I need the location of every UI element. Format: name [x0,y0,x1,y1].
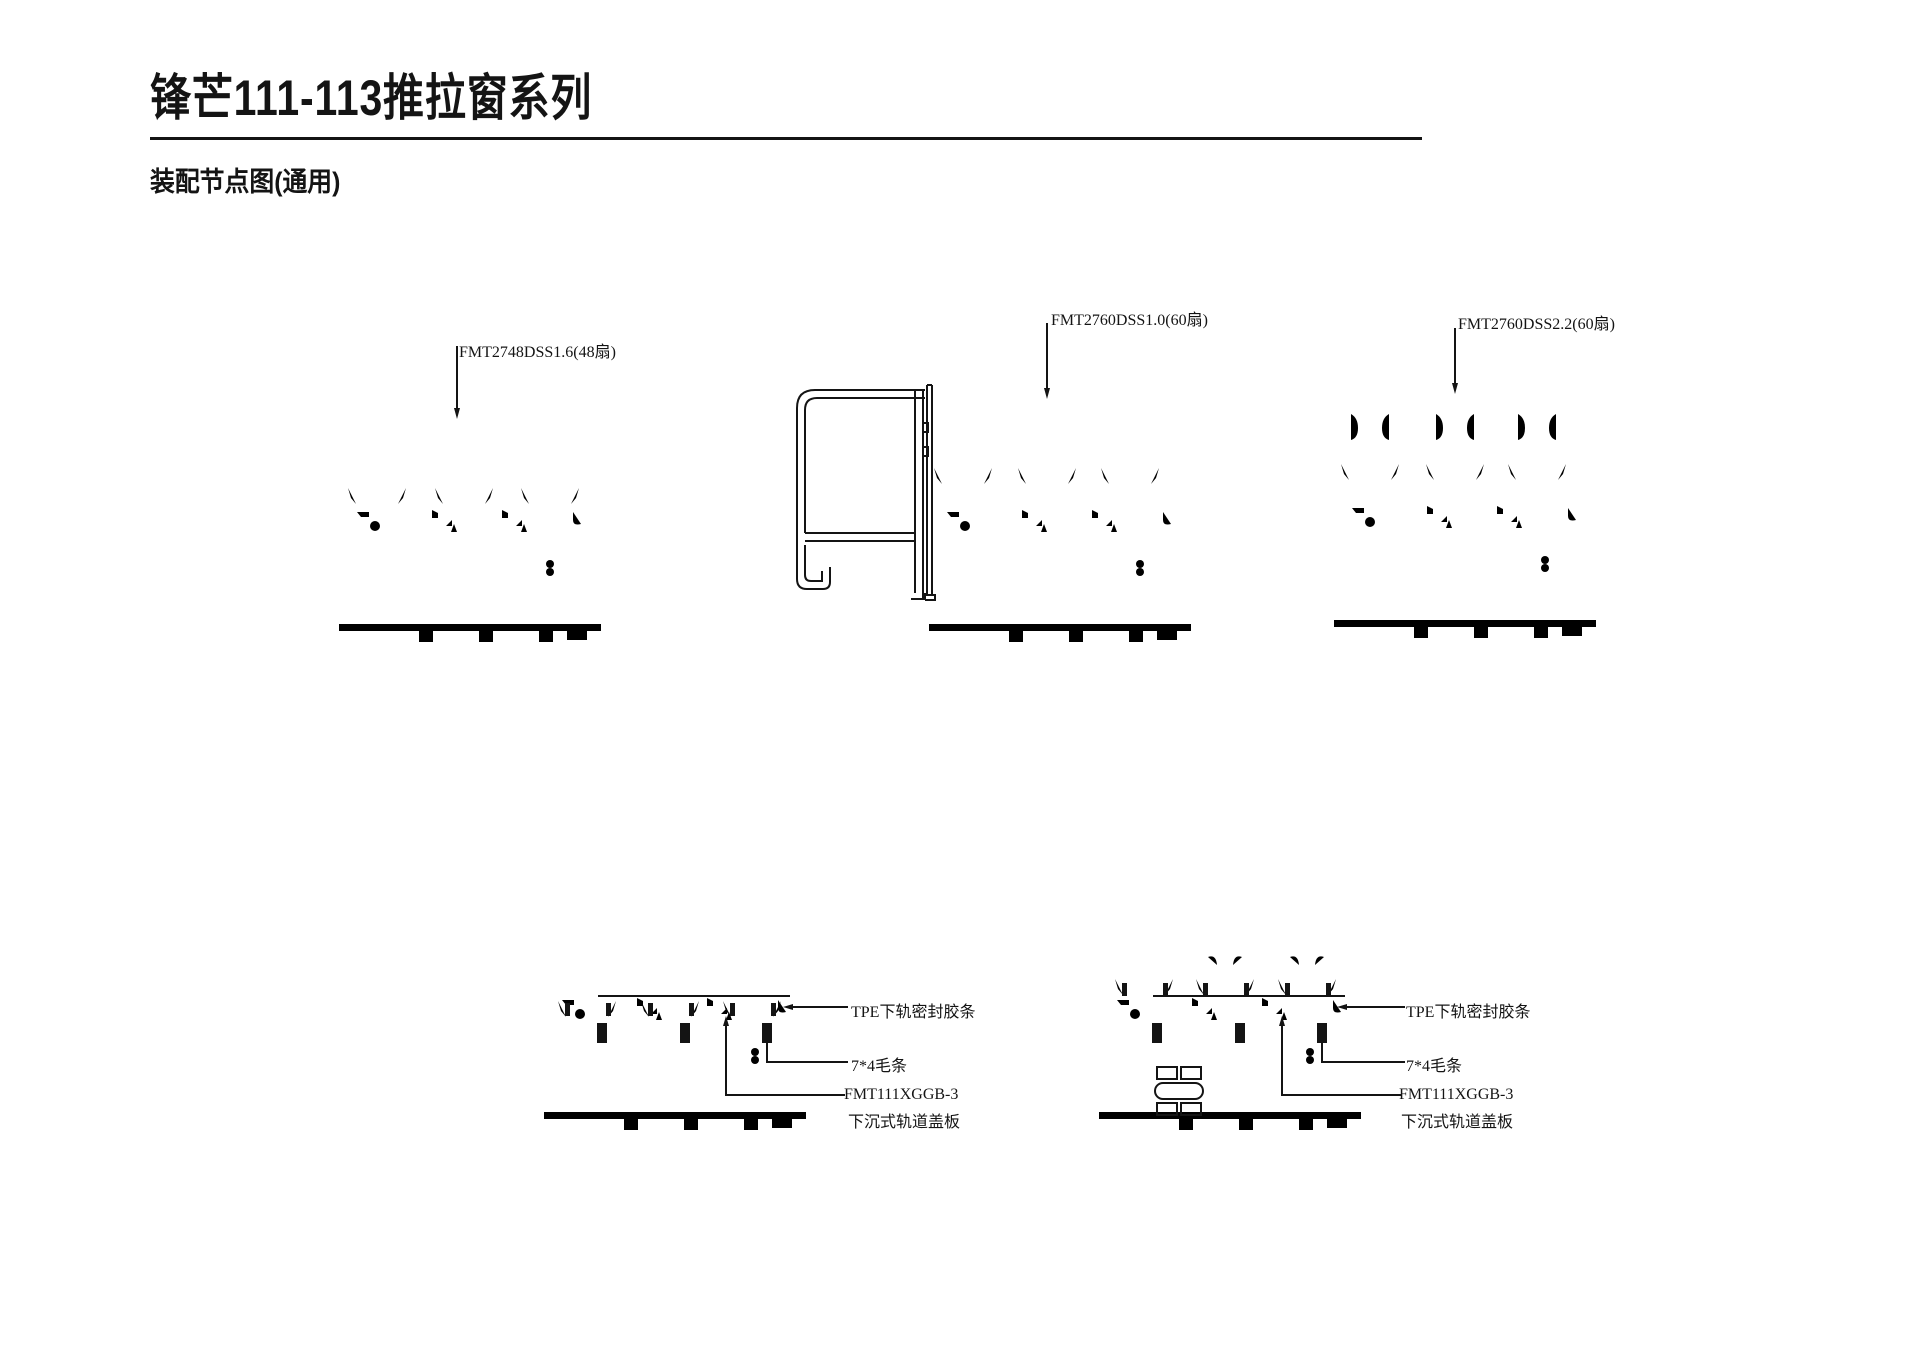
sill-profile [339,472,601,642]
sash-profile [348,396,406,504]
thermal-break-strips [1155,1067,1203,1115]
callout-cover-code: FMT111XGGB-3 [1399,1086,1513,1104]
brush-strips [597,1023,772,1043]
cross-section-60-series-2 [1325,298,1625,633]
sill-profile [1334,468,1596,638]
sash-profile [723,909,781,1017]
page-title: 锋芒111-113推拉窗系列 [150,58,592,130]
sash-profile [1508,372,1566,480]
leader-line [1044,323,1050,399]
cross-section-detail-left [540,855,860,1150]
sash-profile [1278,887,1336,995]
callout-cover-desc: 下沉式轨道盖板 [848,1108,960,1132]
cross-section-48-series [330,330,620,665]
profile-label-fmt2760dss22: FMT2760DSS2.2(60扇) [1458,310,1615,334]
screen-track-bar [925,385,935,600]
title-rule [150,137,1422,140]
callout-leader-lines [723,1004,848,1095]
tpe-seal-gaskets [1122,983,1331,996]
brush-strips [1152,1023,1327,1043]
sash-profile [521,396,579,504]
callout-tpe-seal: TPE下轨密封胶条 [851,998,975,1022]
callout-brush-strip: 7*4毛条 [1406,1052,1462,1076]
sash-profile [641,909,699,1017]
callout-tpe-seal: TPE下轨密封胶条 [1406,998,1530,1022]
cross-section-60-series-1 [785,295,1205,635]
sill-profile [929,472,1191,642]
section-subtitle: 装配节点图(通用) [150,160,340,199]
callout-cover-code: FMT111XGGB-3 [844,1086,958,1104]
profile-label-fmt2760dss10: FMT2760DSS1.0(60扇) [1051,306,1208,330]
callout-cover-desc: 下沉式轨道盖板 [1401,1108,1513,1132]
sash-profile [1196,887,1254,995]
sash-profile [1341,372,1399,480]
sash-profile [435,396,493,504]
tpe-seal-gaskets [565,1003,776,1016]
outer-cover-profile [797,390,928,599]
callout-leader-lines [1279,1004,1405,1095]
sash-profile [1115,887,1173,995]
callout-brush-strip: 7*4毛条 [851,1052,907,1076]
profile-label-fmt2748dss16: FMT2748DSS1.6(48扇) [459,338,616,362]
cross-section-detail-right [1095,855,1417,1150]
sash-profile [934,376,992,484]
leader-line [1452,328,1458,394]
drawing-sheet: 锋芒111-113推拉窗系列 装配节点图(通用) [0,0,1920,1358]
sash-profile [1101,376,1159,484]
